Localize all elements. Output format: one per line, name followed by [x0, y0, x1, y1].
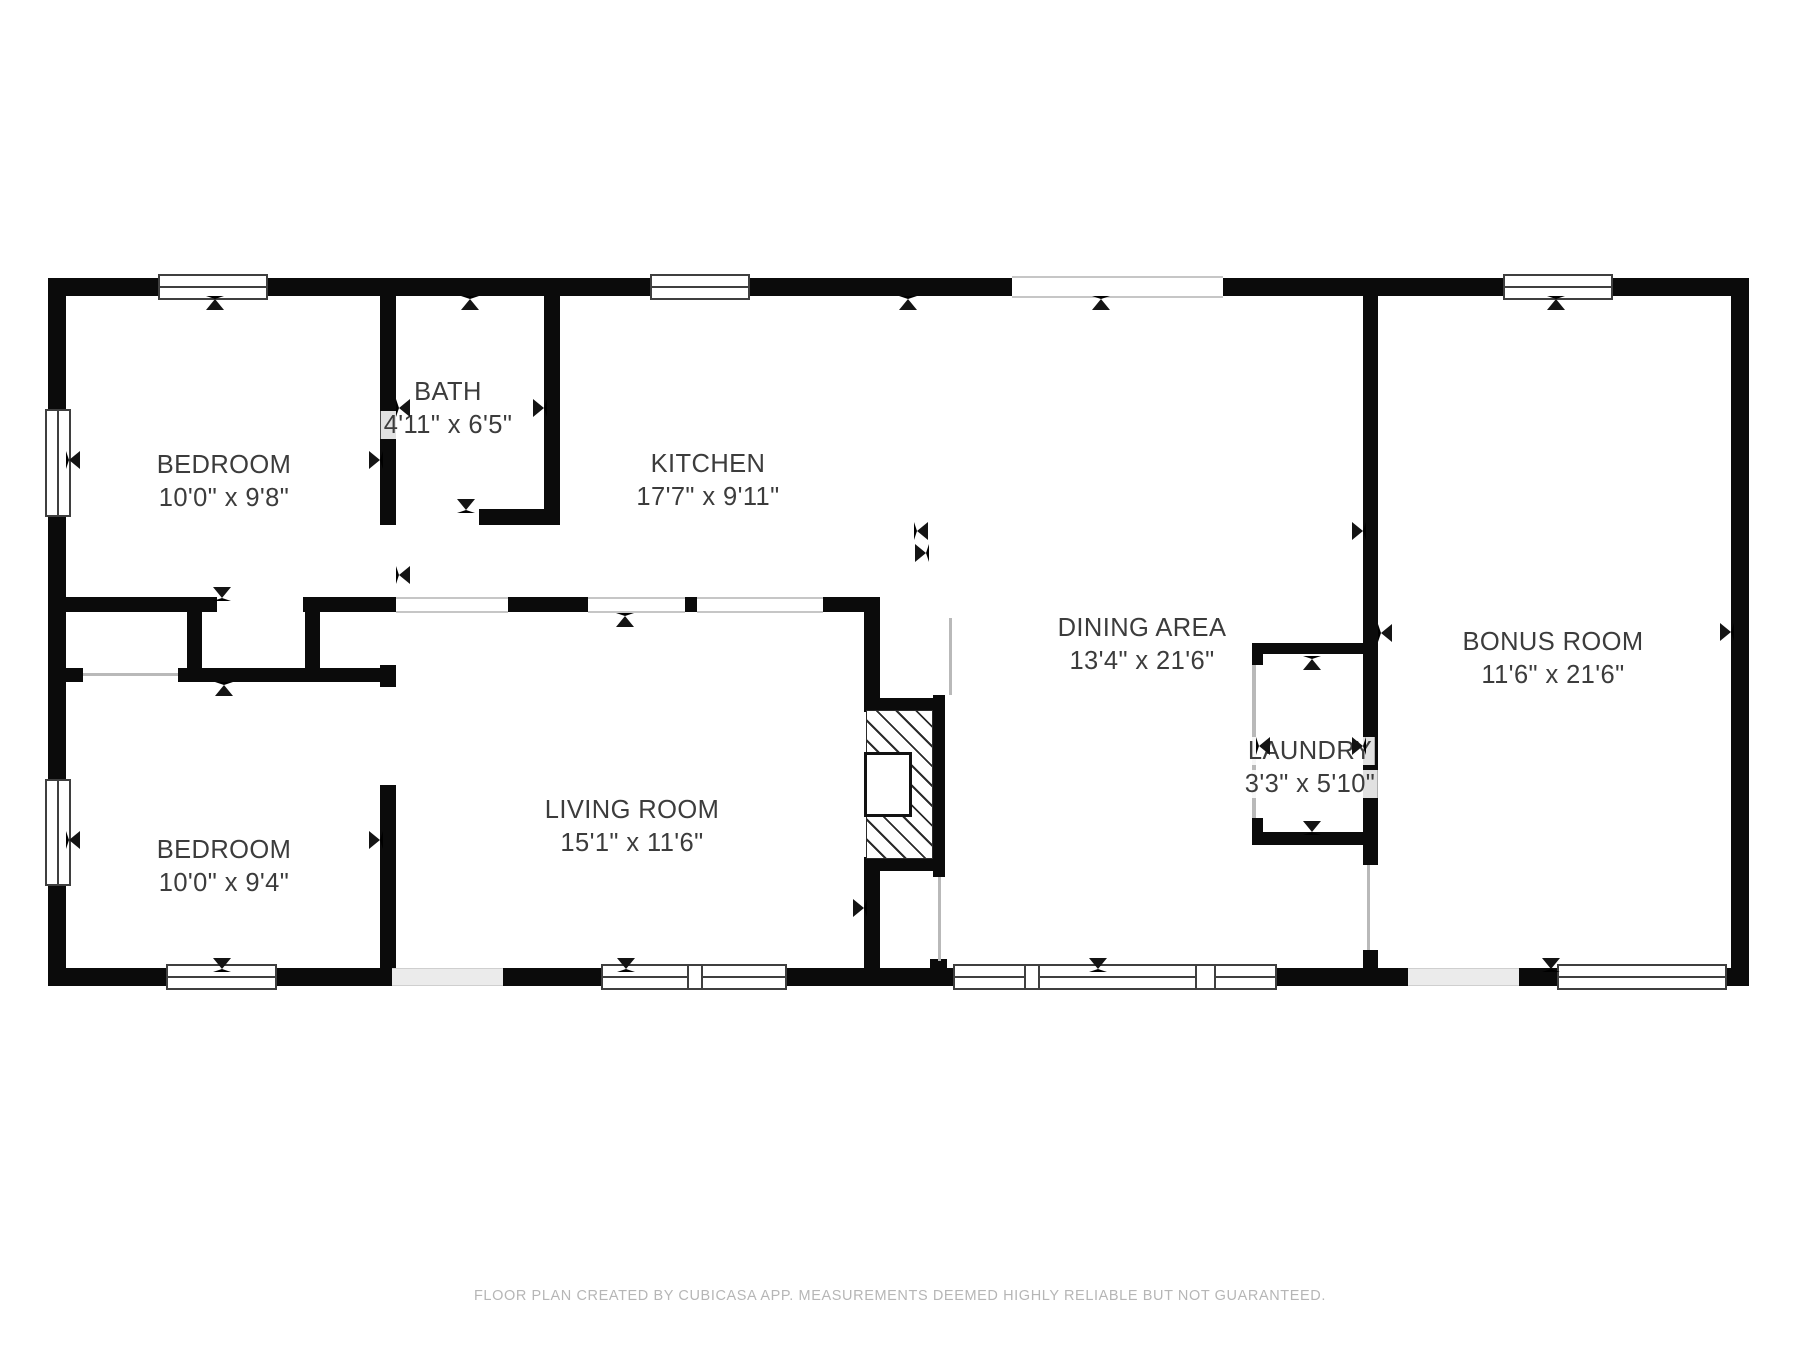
wall-closet-divider-2	[305, 610, 320, 672]
marker-arrow-down-icon	[213, 587, 231, 601]
wall-exterior-top	[48, 278, 1749, 296]
room-dimensions: 15'1" x 11'6"	[557, 829, 706, 857]
marker-arrow-right-icon	[1720, 623, 1734, 641]
marker-arrow-left-icon	[66, 831, 80, 849]
wall-laundry-top-stub	[1252, 643, 1263, 665]
opening-line-alcove-lower	[938, 877, 941, 961]
room-dimensions: 3'3" x 5'10"	[1242, 770, 1378, 798]
room-label-bedroom-1: BEDROOM 10'0" x 9'8"	[154, 449, 295, 515]
wall-dining-bonus-stub	[1363, 950, 1378, 968]
marker-arrow-down-icon	[1089, 958, 1107, 972]
wall-hall-lower-left	[60, 668, 83, 682]
marker-arrow-left-icon	[396, 566, 410, 584]
wall-living-top-pier	[685, 597, 697, 612]
marker-arrow-right-icon	[533, 399, 547, 417]
room-dimensions: 10'0" x 9'8"	[156, 484, 292, 512]
wall-chimney-bottom	[864, 857, 945, 871]
room-label-bonus-room: BONUS ROOM 11'6" x 21'6"	[1459, 626, 1646, 692]
wall-laundry-top	[1252, 643, 1363, 654]
marker-arrow-up-icon	[1303, 656, 1321, 670]
room-name: BATH	[411, 378, 485, 406]
floor-plan: BEDROOM 10'0" x 9'8" BATH 4'11" x 6'5" K…	[0, 0, 1800, 1350]
marker-arrow-left-icon	[1378, 624, 1392, 642]
room-name: BEDROOM	[154, 836, 295, 864]
wall-laundry-bottom-stub	[1252, 818, 1263, 845]
marker-arrow-up-icon	[461, 296, 479, 310]
marker-arrow-left-icon	[66, 451, 80, 469]
window-mullion	[1195, 966, 1216, 988]
room-dimensions: 17'7" x 9'11"	[633, 483, 782, 511]
marker-arrow-up-icon	[899, 296, 917, 310]
marker-arrow-down-icon	[457, 499, 475, 513]
fireplace-firebox	[864, 752, 912, 817]
exterior-gap-bottom-left	[392, 968, 503, 986]
room-label-bedroom-2: BEDROOM 10'0" x 9'4"	[154, 834, 295, 900]
marker-arrow-up-icon	[1092, 296, 1110, 310]
wall-hall-lower-right	[178, 668, 396, 682]
room-name: DINING AREA	[1055, 614, 1230, 642]
wall-living-top-a	[508, 597, 588, 612]
footer-disclaimer: FLOOR PLAN CREATED BY CUBICASA APP. MEAS…	[0, 1288, 1800, 1304]
marker-arrow-left-icon	[914, 522, 928, 540]
window-kitchen-top	[650, 274, 750, 300]
exterior-gap-bottom-right	[1408, 968, 1519, 986]
wall-living-right-upper	[864, 597, 880, 710]
wall-bedroom2-right-lower	[380, 785, 396, 968]
opening-line-alcove-upper	[949, 618, 952, 695]
wall-closet-divider-1	[187, 610, 202, 672]
marker-arrow-down-icon	[1303, 821, 1321, 835]
room-name: KITCHEN	[648, 450, 769, 478]
room-dimensions: 11'6" x 21'6"	[1478, 661, 1627, 689]
room-label-living-room: LIVING ROOM 15'1" x 11'6"	[542, 794, 722, 860]
room-name: BEDROOM	[154, 451, 295, 479]
marker-arrow-left-icon	[396, 399, 410, 417]
opening-hall-living	[396, 597, 508, 613]
opening-line-dining-bonus-passage	[1367, 865, 1370, 950]
marker-arrow-down-icon	[213, 958, 231, 972]
marker-arrow-up-icon	[1547, 296, 1565, 310]
marker-arrow-right-icon	[369, 831, 383, 849]
wall-chimney-right	[933, 695, 945, 877]
marker-arrow-up-icon	[206, 296, 224, 310]
marker-arrow-down-icon	[1542, 958, 1560, 972]
wall-bedroom2-right-upper	[380, 665, 396, 687]
room-dimensions: 13'4" x 21'6"	[1066, 647, 1217, 675]
room-label-kitchen: KITCHEN 17'7" x 9'11"	[633, 448, 782, 514]
window-dining-bottom	[953, 964, 1277, 990]
marker-arrow-up-icon	[616, 613, 634, 627]
room-label-dining-area: DINING AREA 13'4" x 21'6"	[1055, 612, 1230, 678]
opening-kitchen-living-2	[697, 597, 823, 613]
opening-kitchen-living-1	[588, 597, 685, 613]
room-dimensions: 10'0" x 9'4"	[156, 869, 292, 897]
window-mullion	[687, 966, 703, 988]
opening-exterior-top	[1012, 276, 1223, 298]
room-name: LIVING ROOM	[542, 796, 722, 824]
marker-arrow-right-icon	[1352, 737, 1366, 755]
window-mullion	[1024, 966, 1040, 988]
marker-arrow-down-icon	[617, 958, 635, 972]
marker-arrow-right-icon	[853, 899, 867, 917]
opening-line-closet-slider	[83, 673, 178, 676]
marker-arrow-right-icon	[369, 451, 383, 469]
marker-arrow-right-icon	[915, 544, 929, 562]
room-name: BONUS ROOM	[1459, 628, 1646, 656]
window-bonus-bottom	[1557, 964, 1727, 990]
marker-arrow-right-icon	[1352, 522, 1366, 540]
marker-arrow-left-icon	[1256, 737, 1270, 755]
marker-arrow-up-icon	[215, 682, 233, 696]
